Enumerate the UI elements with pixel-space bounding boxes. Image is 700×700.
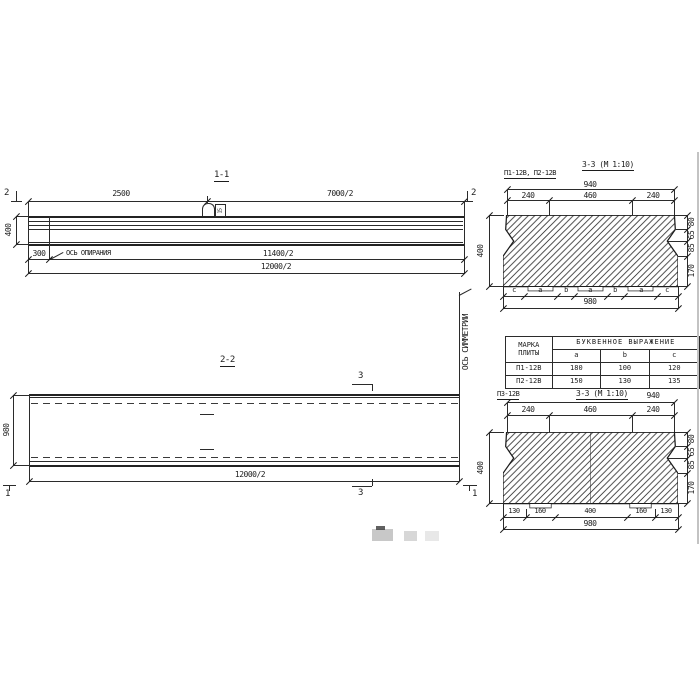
- beam-bottom-edge: [28, 244, 464, 246]
- dim-400: 400: [477, 462, 485, 475]
- dim-tick: [684, 283, 691, 290]
- cut-mark-1-right: 1: [472, 490, 477, 499]
- extension-line: [678, 287, 679, 308]
- plate-marks-label: П1-12В, П2-12В: [504, 170, 556, 179]
- dim-80: 80: [688, 435, 696, 444]
- extension-line: [632, 200, 633, 215]
- scan-artifact: [404, 531, 417, 541]
- scan-artifact: [425, 531, 439, 541]
- center-mark: [200, 449, 214, 450]
- dim-line: [489, 432, 490, 503]
- dim-400: 400: [584, 508, 595, 515]
- dim-170: 170: [688, 482, 696, 495]
- dim-65: 65: [688, 231, 696, 240]
- extension-line: [632, 415, 633, 432]
- letter-expression-table: МАРКА ПЛИТЫ БУКВЕННОЕ ВЫРАЖЕНИЕ a b c П1…: [505, 336, 700, 389]
- scan-artifact: [376, 526, 385, 530]
- table-col-c: c: [649, 350, 699, 363]
- extension-line: [507, 189, 508, 215]
- extension-line: [13, 395, 29, 396]
- strand-line: [29, 221, 463, 222]
- cut-mark-2-left: 2: [4, 189, 9, 198]
- slab-outline: [503, 215, 678, 286]
- table-cell-mark: П1-12В: [506, 363, 553, 376]
- plan-right-edge: [459, 394, 460, 467]
- table-cell-a: 180: [552, 363, 600, 376]
- cross-section-p3-drawing: [503, 432, 678, 511]
- letter-a: a: [588, 287, 592, 294]
- cut-mark-flag: [11, 201, 22, 202]
- table-cell-mark: П2-12В: [506, 376, 553, 389]
- dim-160: 160: [534, 508, 545, 515]
- dim-12000-2: 12000/2: [235, 471, 265, 479]
- letter-c: c: [665, 287, 669, 294]
- dim-85: 85: [688, 244, 696, 253]
- dim-240: 240: [522, 406, 535, 414]
- center-mark: [200, 414, 214, 415]
- scan-artifact: [372, 529, 393, 541]
- cut-mark-3-bottom: 3: [358, 489, 363, 498]
- extension-line: [668, 458, 687, 459]
- drawing-canvas: 1-1 2500 7000/2 2 2 15: [0, 0, 700, 700]
- dim-980: 980: [584, 298, 597, 306]
- extension-line: [503, 287, 504, 308]
- dim-line: [13, 395, 14, 466]
- dim-tick: [675, 305, 682, 312]
- cut-mark-flag: [463, 485, 477, 486]
- extension-line: [489, 286, 504, 287]
- beam-left-edge: [28, 201, 29, 274]
- cut-mark-flag: [372, 479, 373, 486]
- dim-85: 85: [688, 461, 696, 470]
- table-row: П1-12В 180 100 120: [506, 363, 700, 376]
- extension-line: [489, 503, 504, 504]
- extension-line: [668, 241, 687, 242]
- dim-80: 80: [688, 218, 696, 227]
- cut-mark-2-right: 2: [471, 189, 476, 198]
- cut-mark-1-left: 1: [5, 490, 10, 499]
- dim-2500: 2500: [112, 190, 129, 198]
- dim-130: 130: [660, 508, 671, 515]
- extension-line: [489, 215, 504, 216]
- dim-400: 400: [477, 245, 485, 258]
- dim-line: [29, 481, 459, 482]
- scan-edge-line: [697, 152, 699, 544]
- dim-line: [507, 200, 674, 201]
- table-cell-a: 150: [552, 376, 600, 389]
- bearing-axis-line: [49, 216, 50, 259]
- extension-line: [16, 216, 28, 217]
- loop-tag-box: 15: [215, 204, 226, 217]
- extension-line: [13, 465, 29, 466]
- dim-line: [16, 216, 17, 245]
- extension-line: [549, 200, 550, 215]
- plan-top-inner-line: [29, 397, 460, 398]
- dim-line: [28, 201, 464, 202]
- table-row: П2-12В 150 130 135: [506, 376, 700, 389]
- dim-line: [507, 402, 674, 403]
- extension-line: [489, 432, 504, 433]
- table-header-mark: МАРКА ПЛИТЫ: [506, 337, 553, 363]
- dim-7000-2: 7000/2: [327, 190, 353, 198]
- cut-mark-flag: [352, 486, 372, 487]
- section-3-3-title: 3-3 (М 1:10): [582, 161, 634, 171]
- table-cell-c: 135: [649, 376, 699, 389]
- plan-left-edge: [29, 394, 30, 467]
- dim-line: [503, 308, 678, 309]
- extension-line: [16, 244, 28, 245]
- extension-line: [655, 509, 656, 517]
- dim-line: [489, 215, 490, 286]
- plate-marks-label: П3-12В: [497, 391, 519, 400]
- section-2-2-title: 2-2: [220, 356, 235, 367]
- letter-b: b: [613, 287, 617, 294]
- extension-line: [674, 189, 675, 215]
- letter-a: a: [639, 287, 643, 294]
- dim-tick: [675, 526, 682, 533]
- letter-c: c: [512, 287, 516, 294]
- dim-300: 300: [33, 250, 46, 258]
- dim-tick: [684, 500, 691, 507]
- dim-240: 240: [647, 192, 660, 200]
- table-cell-b: 100: [601, 363, 649, 376]
- letter-b: b: [564, 287, 568, 294]
- plan-top-edge: [29, 394, 460, 396]
- dim-65: 65: [688, 448, 696, 457]
- bearing-axis-label: ОСЬ ОПИРАНИЯ: [66, 250, 111, 257]
- leader-line: [459, 288, 472, 295]
- dim-line: [503, 529, 678, 530]
- hidden-line: [31, 403, 458, 404]
- table-cell-b: 130: [601, 376, 649, 389]
- section-1-1-title: 1-1: [214, 171, 229, 182]
- dim-line: [503, 517, 678, 518]
- dim-940: 940: [584, 181, 597, 189]
- strand-line: [29, 242, 463, 243]
- dim-400: 400: [5, 224, 13, 237]
- dim-160: 160: [635, 508, 646, 515]
- dim-240: 240: [522, 192, 535, 200]
- cut-mark-flag: [372, 384, 373, 391]
- dim-130: 130: [508, 508, 519, 515]
- dim-980: 980: [584, 520, 597, 528]
- extension-line: [674, 402, 675, 432]
- extension-line: [526, 509, 527, 517]
- hidden-line: [31, 457, 458, 458]
- dim-11400-2: 11400/2: [263, 250, 293, 258]
- table-col-a: a: [552, 350, 600, 363]
- extension-line: [549, 415, 550, 432]
- beam-right-edge: [464, 201, 465, 274]
- plan-bottom-edge: [29, 465, 460, 467]
- cut-mark-flag: [352, 384, 372, 385]
- dim-460: 460: [584, 192, 597, 200]
- loop-tag: 15: [218, 208, 224, 213]
- dim-line: [507, 189, 674, 190]
- loop-extension-line: [207, 196, 208, 203]
- letter-a: a: [538, 287, 542, 294]
- symmetry-axis-label: ОСЬ СИММЕТРИИ: [462, 314, 470, 370]
- dim-line: [507, 415, 674, 416]
- extension-line: [678, 504, 679, 529]
- dim-line: [28, 259, 464, 260]
- lifting-loop: [202, 203, 215, 216]
- dim-940: 940: [647, 392, 660, 400]
- strand-line: [29, 229, 463, 230]
- symmetry-axis-line: [459, 292, 460, 394]
- table-header-expr: БУКВЕННОЕ ВЫРАЖЕНИЕ: [552, 337, 699, 350]
- table-cell-c: 120: [649, 363, 699, 376]
- dim-line: [28, 273, 464, 274]
- section-3-3-title: 3-3 (М 1:10): [576, 390, 628, 400]
- dim-12000-2: 12000/2: [261, 263, 291, 271]
- dim-980: 980: [3, 424, 11, 437]
- plan-bottom-inner-line: [29, 461, 460, 462]
- beam-top-edge: [28, 216, 464, 218]
- dim-170: 170: [688, 265, 696, 278]
- cut-mark-flag: [469, 485, 470, 491]
- dim-tick: [461, 270, 468, 277]
- table-col-b: b: [601, 350, 649, 363]
- dim-240: 240: [647, 406, 660, 414]
- dim-460: 460: [584, 406, 597, 414]
- cross-section-p12-drawing: [503, 215, 678, 294]
- strand-line: [29, 225, 463, 226]
- extension-line: [507, 402, 508, 432]
- cut-mark-3-top: 3: [358, 372, 363, 381]
- extension-line: [503, 504, 504, 529]
